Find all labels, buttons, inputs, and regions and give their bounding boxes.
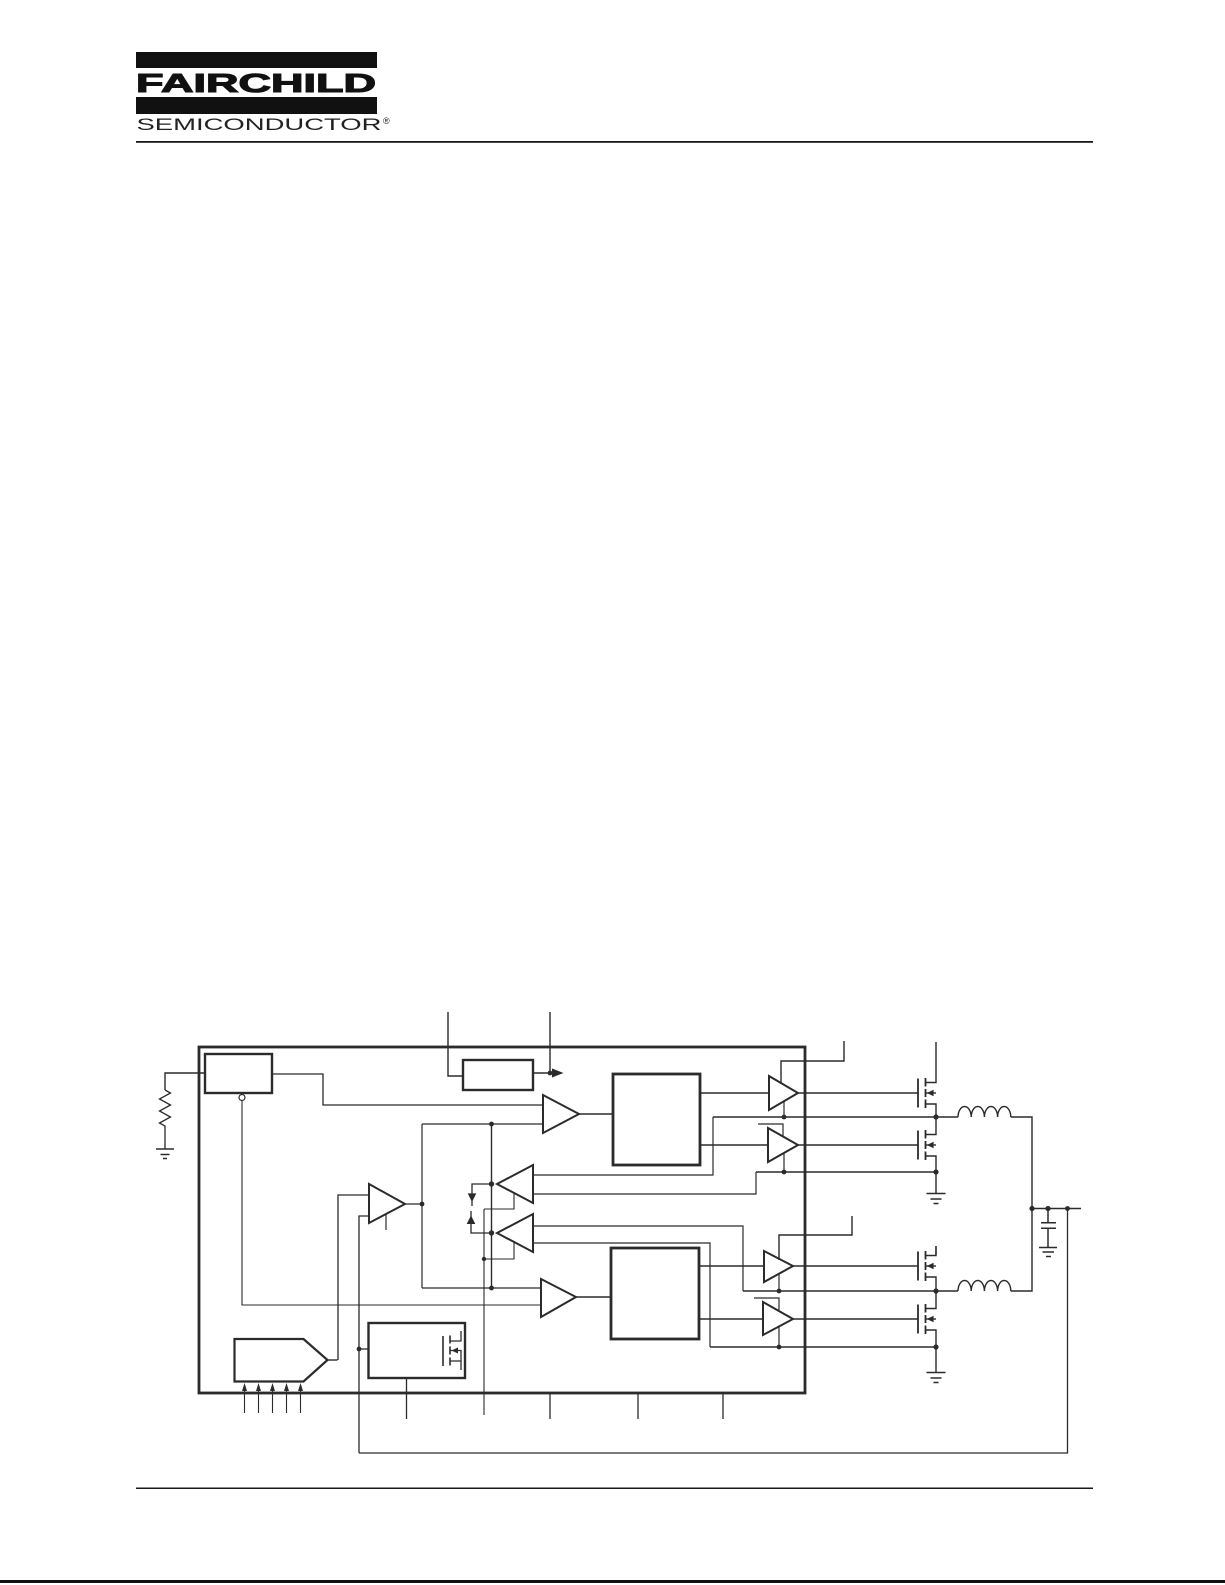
- svg-text:FAIRCHILD: FAIRCHILD: [136, 68, 376, 98]
- svg-text:®: ®: [383, 116, 390, 126]
- svg-text:SEMICONDUCTOR: SEMICONDUCTOR: [137, 116, 382, 134]
